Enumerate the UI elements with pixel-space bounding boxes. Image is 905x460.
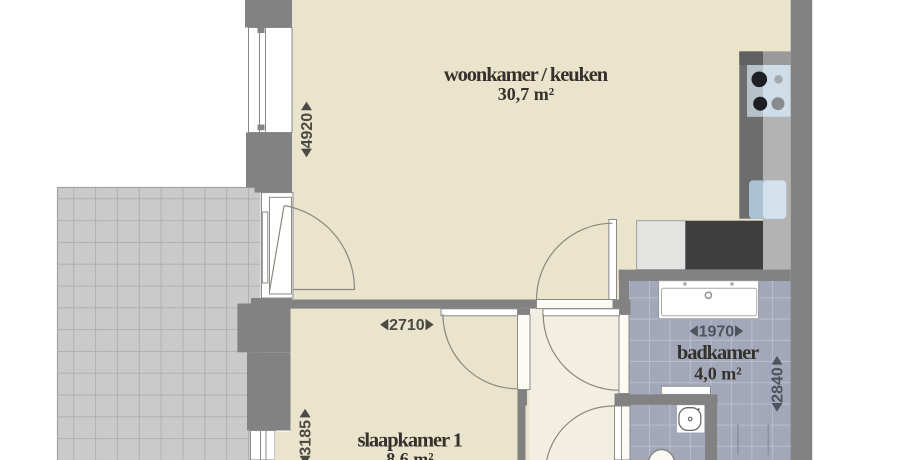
svg-text:8,6 m²: 8,6 m² (386, 449, 433, 460)
svg-text:woonkamer / keuken: woonkamer / keuken (444, 64, 609, 86)
svg-text:badkamer: badkamer (677, 342, 759, 364)
svg-text:2710: 2710 (389, 317, 425, 334)
svg-text:30,7 m²: 30,7 m² (498, 84, 554, 104)
svg-text:1970: 1970 (699, 324, 735, 341)
svg-text:4,0 m²: 4,0 m² (694, 363, 741, 383)
svg-text:2840: 2840 (769, 367, 786, 403)
svg-text:4920: 4920 (299, 113, 316, 149)
svg-text:3185: 3185 (298, 420, 315, 456)
